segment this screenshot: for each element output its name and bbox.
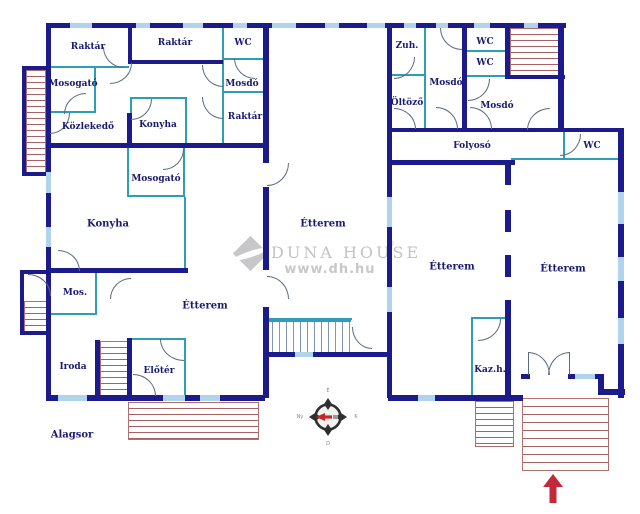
room-label-etterem-right-1: Étterem [429, 262, 474, 273]
wall-segment [388, 160, 515, 165]
staircase [265, 320, 351, 354]
door-arc-icon [64, 93, 86, 114]
door-arc-icon [267, 276, 289, 299]
room-label-mosogato-2: Mosogató [131, 174, 180, 184]
window-opening [575, 374, 595, 379]
partition-wall [184, 197, 186, 270]
partition-wall [263, 318, 352, 320]
door-arc-icon [548, 352, 570, 375]
wall-segment [128, 60, 223, 64]
wall-segment [263, 307, 269, 398]
compass-label-north: É [326, 388, 329, 394]
wall-segment [22, 172, 46, 176]
partition-wall [464, 50, 505, 52]
room-label-mosdo-3: Mosdó [480, 101, 513, 111]
room-label-kozlekedo: Közlekedő [62, 122, 114, 132]
room-label-mosogato-1: Mosogató [48, 79, 97, 89]
partition-wall [51, 313, 97, 315]
partition-wall [183, 147, 185, 197]
window-opening [418, 395, 435, 401]
room-label-etterem-middle: Étterem [300, 219, 345, 230]
room-label-konyha-1: Konyha [139, 120, 177, 130]
window-opening [387, 287, 392, 312]
room-label-wc-1: WC [234, 38, 251, 48]
window-opening [618, 192, 624, 224]
wall-segment [388, 128, 621, 132]
room-label-iroda: Iroda [59, 362, 86, 372]
partition-wall [127, 195, 185, 197]
partition-wall [95, 272, 97, 315]
partition-wall [94, 66, 96, 113]
watermark-url: www.dh.hu [284, 262, 375, 277]
staircase [26, 70, 46, 175]
door-arc-icon [202, 97, 223, 119]
window-opening [58, 395, 87, 401]
wall-segment [20, 331, 48, 335]
watermark-brand: DUNA HOUSE [271, 243, 421, 262]
wall-segment [263, 23, 269, 163]
door-arc-icon [436, 107, 458, 129]
window-opening [404, 23, 416, 28]
window-opening [46, 227, 51, 247]
wall-segment [263, 187, 269, 270]
door-arc-icon [58, 250, 80, 271]
door-arc-icon [440, 28, 462, 50]
room-label-etterem-left: Étterem [182, 301, 227, 312]
door-arc-icon [160, 339, 184, 361]
door-arc-icon [131, 99, 152, 120]
door-arc-icon [527, 108, 550, 130]
staircase [475, 401, 514, 447]
wall-segment [20, 270, 24, 335]
window-opening [524, 23, 538, 28]
partition-wall [424, 28, 426, 128]
wall-segment [505, 255, 511, 277]
door-arc-icon [267, 163, 289, 186]
compass-label-east: K [354, 414, 357, 420]
door-arc-icon [394, 108, 416, 129]
window-opening [295, 352, 313, 357]
window-opening [136, 23, 150, 28]
room-label-oltozo: Öltöző [391, 98, 424, 108]
door-arc-icon [560, 134, 581, 156]
door-arc-icon [133, 374, 156, 396]
room-label-mosdo-2: Mosdó [429, 78, 462, 88]
wall-segment [20, 270, 48, 274]
wall-segment [558, 23, 564, 132]
wall-segment [388, 395, 523, 401]
entrance-arrow-icon [542, 474, 564, 504]
room-label-wc-3: WC [476, 58, 493, 68]
window-opening [474, 23, 490, 28]
door-arc-icon [163, 149, 184, 170]
window-opening [163, 395, 185, 401]
room-label-zuh: Zuh. [396, 41, 419, 51]
door-arc-icon [478, 319, 501, 341]
room-label-raktar-2: Raktár [158, 38, 192, 48]
wall-segment [505, 300, 511, 397]
wall-segment [462, 23, 467, 128]
staircase [24, 301, 48, 333]
entrance-staircase [522, 398, 609, 471]
wall-segment [128, 23, 132, 64]
window-opening [272, 23, 296, 28]
wall-segment [505, 160, 511, 185]
wall-segment [505, 210, 511, 232]
room-label-konyha-2: Konyha [87, 219, 129, 230]
window-opening [618, 318, 624, 344]
room-label-eloter: Előtér [144, 366, 175, 376]
wall-segment [505, 75, 565, 79]
floor-label-alagsor: Alagsor [51, 430, 94, 441]
staircase [128, 402, 259, 440]
window-opening [618, 257, 624, 281]
room-label-wc-4: WC [583, 141, 600, 151]
door-arc-icon [110, 278, 131, 299]
window-opening [325, 23, 339, 28]
partition-wall [222, 91, 263, 93]
window-opening [367, 23, 385, 28]
window-opening [200, 395, 220, 401]
wall-segment [22, 66, 26, 176]
window-opening [387, 197, 392, 227]
room-label-raktar-1: Raktár [71, 42, 105, 52]
room-label-kaz-h: Kaz.h. [474, 365, 506, 375]
compass-rose-icon [305, 394, 351, 440]
wall-segment [95, 340, 100, 397]
floor-plan: DUNA HOUSE ® www.dh.hu Raktár Raktár WC … [0, 0, 640, 514]
room-label-folyoso: Folyosó [453, 141, 491, 151]
door-arc-icon [352, 327, 372, 349]
wall-segment [263, 352, 390, 357]
compass-label-west: Ny [297, 414, 304, 420]
door-arc-icon [528, 352, 550, 375]
door-arc-icon [110, 63, 132, 84]
window-opening [70, 23, 92, 28]
door-arc-icon [234, 58, 255, 79]
window-opening [233, 23, 247, 28]
partition-wall [464, 75, 505, 77]
door-arc-icon [468, 79, 490, 101]
wall-segment [46, 143, 265, 148]
window-opening [183, 23, 203, 28]
partition-wall [222, 28, 224, 147]
partition-wall [184, 338, 186, 397]
room-label-mos: Mos. [63, 288, 87, 298]
staircase [100, 341, 129, 397]
wall-segment [127, 338, 132, 397]
partition-wall [127, 147, 129, 197]
room-label-raktar-3: Raktár [228, 112, 262, 122]
room-label-mosdo-1: Mosdó [225, 79, 258, 89]
compass-label-south: D [326, 441, 330, 447]
room-label-wc-2: WC [476, 37, 493, 47]
partition-wall [511, 158, 621, 160]
room-label-etterem-right-2: Étterem [540, 264, 585, 275]
partition-wall [471, 317, 473, 397]
partition-wall [185, 97, 187, 143]
wall-segment [505, 23, 510, 79]
window-opening [46, 172, 51, 193]
staircase [510, 28, 560, 76]
door-arc-icon [202, 65, 223, 87]
